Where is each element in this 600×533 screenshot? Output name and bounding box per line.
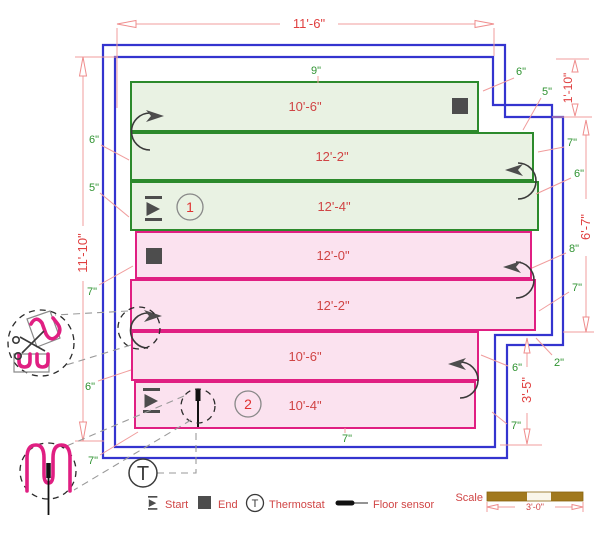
offset-left-c: 7" (87, 286, 97, 298)
scale-dimension: 3'-0" (487, 502, 583, 512)
offset-right-f: 6" (512, 362, 522, 374)
zone1-band-1-length: 10'-6" (288, 99, 322, 114)
zone2-band-2-length: 12'-2" (316, 298, 350, 313)
thermostat-symbol: T (137, 463, 149, 485)
zone2-end-marker (146, 248, 162, 264)
scale-length-label: 3'-0" (526, 502, 544, 512)
plan-canvas: 10'-6" 12'-2" 12'-4" 12'-0" 12'-2" 10'-6… (0, 0, 600, 533)
sensor-detail (20, 443, 76, 515)
legend-floor-sensor-label: Floor sensor (373, 499, 434, 511)
offset-left-b: 5" (89, 182, 99, 194)
dim-right-top-label: 1'-10" (561, 73, 575, 104)
floor-heating-plan: 10'-6" 12'-2" 12'-4" 12'-0" 12'-2" 10'-6… (0, 0, 600, 533)
dim-left-label: 11'-10" (75, 233, 90, 273)
offset-bottom: 7" (342, 433, 352, 445)
offset-right-d: 7" (572, 282, 582, 294)
zone1-number: 1 (186, 199, 194, 215)
zone2-band-3-length: 10'-6" (288, 349, 322, 364)
start-icon (143, 388, 160, 391)
legend-thermostat-symbol: T (252, 498, 259, 510)
zone1-band-2-length: 12'-2" (315, 149, 349, 164)
offset-right-g: 7" (511, 420, 521, 432)
start-icon-bar (145, 218, 162, 221)
legend-end-icon (198, 496, 211, 509)
legend-start-icon (148, 496, 157, 510)
legend: Start End T Thermostat Floor sensor Scal… (148, 492, 583, 512)
legend-end-label: End (218, 499, 238, 511)
cut-tube-upper (31, 318, 60, 339)
zone1-end-marker (452, 98, 468, 114)
dim-right-bottom-label: 3'-5" (519, 377, 534, 403)
thermostat-connector (157, 429, 196, 473)
dim-top-label: 11'-6" (293, 16, 326, 31)
offset-top-center: 9" (311, 65, 321, 77)
cut-detail (8, 310, 74, 376)
offset-right-c: 8" (569, 243, 579, 255)
offset-right-a: 7" (567, 137, 577, 149)
zone2-band-1-length: 12'-0" (316, 248, 350, 263)
offset-left-e: 7" (88, 455, 98, 467)
scale-bar (487, 492, 583, 501)
dimension-right-top: 1'-10" (552, 59, 592, 117)
dim-right-mid-label: 6'-7" (578, 214, 593, 240)
offset-left-a: 6" (89, 134, 99, 146)
offset-top-right-b: 5" (542, 86, 552, 98)
cut-tube-lower (19, 354, 48, 367)
offset-right-b: 6" (574, 168, 584, 180)
zone1-band-3-length: 12'-4" (317, 199, 351, 214)
legend-start-label: Start (165, 499, 188, 511)
scale-label: Scale (455, 492, 483, 504)
dimension-left: 11'-10" (75, 57, 118, 441)
start-icon (145, 196, 162, 199)
zone2-heating-mat: 12'-0" 12'-2" 10'-6" 10'-4" (131, 232, 535, 428)
legend-thermostat-label: Thermostat (269, 499, 325, 511)
zone2-band-4-length: 10'-4" (288, 398, 322, 413)
zone2-number: 2 (244, 396, 252, 412)
offset-top-right-a: 6" (516, 66, 526, 78)
offset-left-d: 6" (85, 381, 95, 393)
offset-right-e: 2" (554, 357, 564, 369)
dimension-right-mid: 6'-7" (563, 120, 594, 332)
